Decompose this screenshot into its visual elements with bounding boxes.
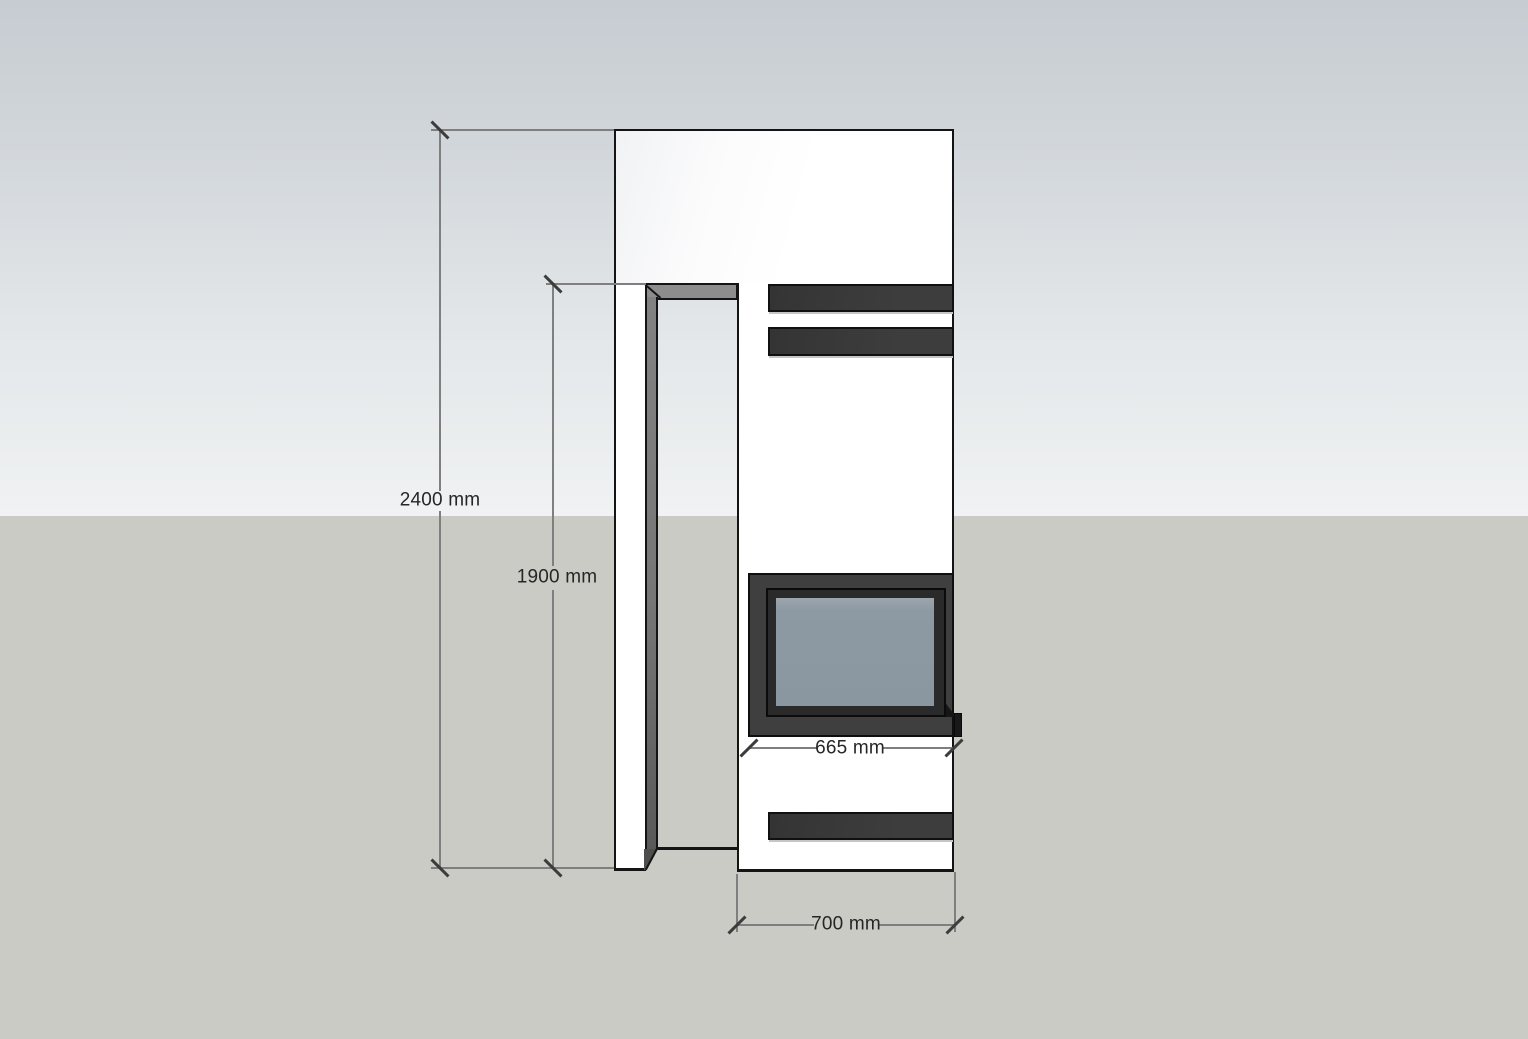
dimension-line	[552, 284, 554, 566]
dimension-label-opening-height[interactable]: 1900 mm	[517, 568, 598, 589]
extension-line	[431, 867, 614, 869]
niche-left-jamb[interactable]	[645, 297, 658, 849]
chimney-front-face[interactable]	[614, 129, 954, 285]
dimension-label-firebox-width[interactable]: 665 mm	[815, 739, 885, 760]
dimension-label-overall-height[interactable]: 2400 mm	[400, 491, 481, 512]
dimension-line	[552, 590, 554, 868]
dimension-line	[882, 747, 954, 749]
left-column-face[interactable]	[614, 285, 646, 871]
dimension-line	[737, 924, 814, 926]
niche-floor-edge	[656, 847, 738, 850]
extension-line	[546, 283, 646, 285]
dimension-line	[439, 511, 441, 868]
dimension-line	[748, 747, 818, 749]
firebox-side-return	[954, 713, 962, 737]
dimension-label-base-width[interactable]: 700 mm	[811, 915, 881, 936]
vent-bar-bottom[interactable]	[768, 812, 954, 840]
model-viewport[interactable]: 2400 mm 1900 mm 665 mm 700 mm	[0, 0, 1528, 1039]
extension-line	[431, 129, 614, 131]
vent-bar-top-2[interactable]	[768, 327, 954, 356]
dimension-line	[878, 924, 956, 926]
dimension-line	[439, 130, 441, 491]
firebox-glass[interactable]	[776, 598, 934, 706]
vent-bar-top-1[interactable]	[768, 284, 954, 312]
